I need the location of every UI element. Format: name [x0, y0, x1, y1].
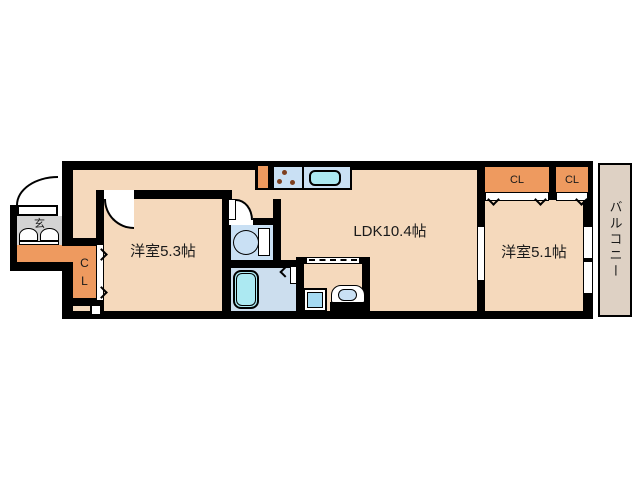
window-icon — [584, 227, 592, 258]
closet-b-label: CL — [556, 167, 588, 192]
shoe-cabinet-icon — [40, 228, 59, 241]
toilet-bowl-icon — [233, 230, 259, 255]
toilet-door-leaf-icon — [228, 199, 236, 220]
entrance-label: 玄 — [17, 216, 62, 229]
wall-segment — [10, 262, 62, 271]
stove-burner-icon — [277, 179, 282, 184]
stove-burner-icon — [282, 170, 287, 175]
bedroom-right-label: 洋室5.1帖 — [485, 242, 583, 260]
window-icon — [584, 262, 592, 293]
wall-segment — [62, 311, 593, 319]
wall-segment — [549, 161, 556, 200]
wall-segment — [62, 262, 73, 319]
sliding-door-track — [309, 259, 357, 261]
hall-closet-label: C L — [73, 250, 96, 294]
kitchen-counter-divider — [302, 166, 304, 189]
washing-machine-icon — [303, 288, 327, 312]
entrance-door-swing-icon — [16, 176, 58, 205]
stove-burner-icon — [290, 180, 295, 185]
sliding-partition-icon — [478, 227, 484, 280]
toilet-tank-icon — [258, 228, 270, 256]
bedroom-left-label: 洋室5.3帖 — [104, 241, 222, 259]
hall-closet-label-top: C — [80, 254, 89, 272]
kitchen-sink-icon — [309, 170, 341, 186]
washing-machine-pan — [307, 292, 323, 308]
balcony-label: バルコニー — [598, 178, 632, 302]
pillar — [258, 166, 268, 188]
wall-segment — [330, 302, 370, 311]
shoe-cabinet-icon — [19, 228, 38, 241]
hall-closet-label-bottom: L — [81, 272, 88, 290]
bedroom-left-door-threshold — [104, 190, 134, 199]
wall-segment — [273, 199, 281, 264]
sliding-door-icon — [306, 257, 360, 264]
vanity-bowl-icon — [338, 289, 357, 301]
bathtub-inner-line — [236, 273, 256, 306]
closet-a-label: CL — [485, 167, 549, 192]
wall-segment — [62, 161, 73, 245]
floor-plan: 玄 C L 洋室5.3帖 — [0, 0, 638, 480]
ldk-label: LDK10.4帖 — [330, 221, 450, 239]
entrance-hall-step — [17, 245, 73, 262]
pipe-space — [90, 304, 102, 316]
bathtub-icon — [233, 270, 259, 309]
